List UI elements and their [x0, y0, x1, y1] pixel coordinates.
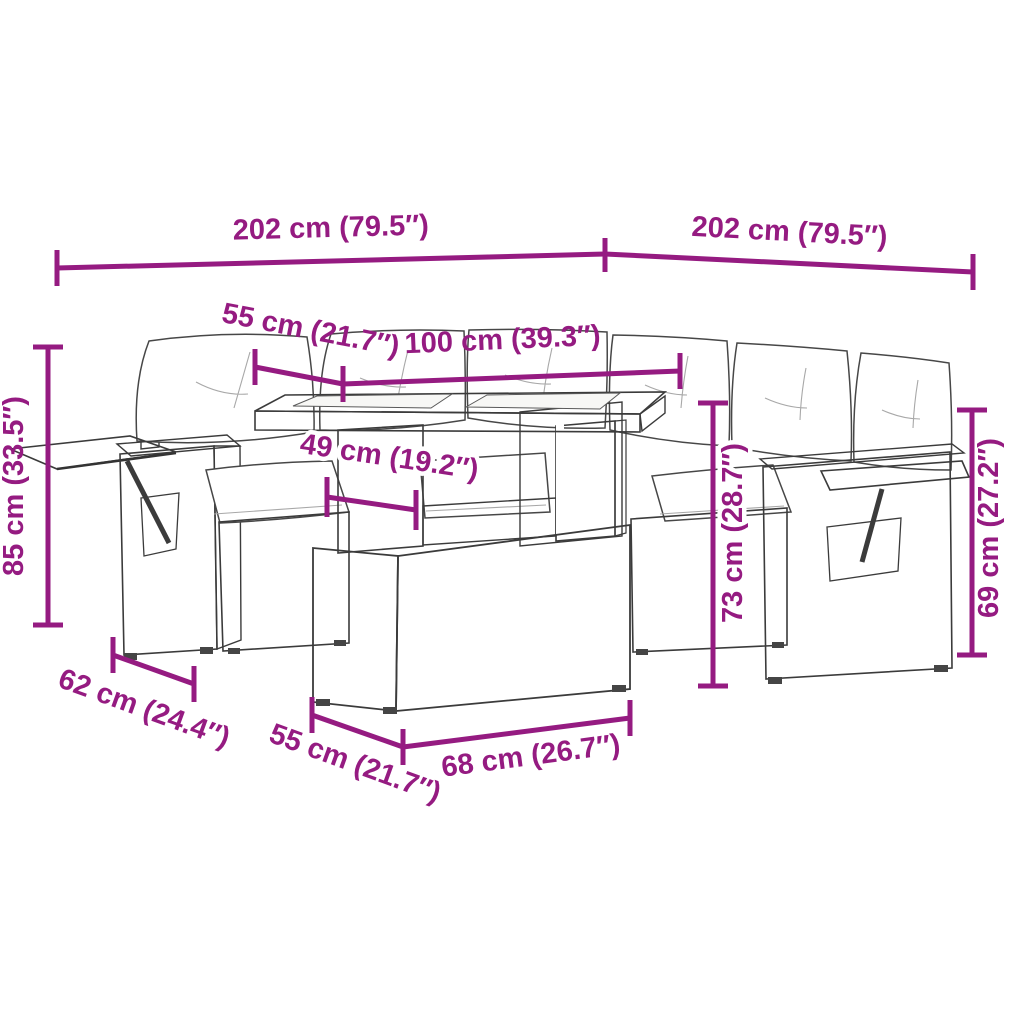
dimension-line	[605, 254, 973, 272]
back-cushion	[732, 343, 852, 461]
dimension-55-front: 55 cm (21.7″)	[265, 697, 445, 809]
right-armrest-front	[763, 452, 952, 679]
furniture-foot	[612, 685, 626, 692]
furniture-foot	[934, 665, 948, 672]
furniture-foot	[334, 640, 346, 646]
dimension-69-right: 69 cm (27.2″)	[957, 410, 1005, 655]
back-cushion	[136, 334, 314, 442]
dimension-label-202-top-left: 202 cm (79.5″)	[232, 209, 429, 246]
furniture-foot	[768, 677, 782, 684]
furniture-foot	[200, 647, 213, 654]
left-seat-base	[219, 512, 349, 651]
dimension-202-top-right: 202 cm (79.5″)	[605, 211, 973, 290]
dimension-202-top-left: 202 cm (79.5″)	[57, 209, 605, 286]
furniture-foot	[772, 642, 784, 648]
product-dimension-diagram: 202 cm (79.5″) 202 cm (79.5″) 55 cm (21.…	[0, 0, 1024, 1024]
furniture-foot	[383, 707, 397, 714]
right-armrest-assembly	[760, 444, 969, 684]
dimension-label-73-mid: 73 cm (28.7″)	[717, 443, 749, 623]
table-right-pedestal	[556, 421, 615, 541]
dimension-line	[57, 254, 605, 268]
dimension-label-202-top-right: 202 cm (79.5″)	[691, 211, 888, 253]
furniture-foot	[228, 648, 240, 654]
ottoman-left-face	[313, 548, 398, 711]
dimension-label-85-left: 85 cm (33.5″)	[0, 396, 30, 576]
dimension-line	[113, 655, 194, 684]
dimension-68-front: 68 cm (26.7″)	[403, 700, 630, 784]
right-tray-strut	[862, 489, 882, 562]
pedestal-gap-highlight	[556, 421, 564, 535]
table-glass-panel	[466, 393, 620, 409]
dimension-85-left: 85 cm (33.5″)	[0, 347, 63, 625]
dimension-62-depth: 62 cm (24.4″)	[54, 637, 234, 754]
table-pedestal-side	[615, 420, 626, 536]
table-glass-panel	[293, 394, 452, 408]
furniture-illustration	[10, 329, 969, 714]
dimension-label-62-depth: 62 cm (24.4″)	[54, 663, 234, 755]
ottoman-front-face	[396, 525, 630, 711]
ottoman	[313, 525, 630, 714]
furniture-foot	[316, 699, 330, 706]
furniture-foot	[636, 649, 648, 655]
diagram-canvas: 202 cm (79.5″) 202 cm (79.5″) 55 cm (21.…	[0, 0, 1024, 1024]
tray-edge	[57, 453, 176, 469]
dimension-73-mid: 73 cm (28.7″)	[698, 403, 749, 686]
left-tray-strut	[127, 461, 169, 543]
dimension-label-69-right: 69 cm (27.2″)	[973, 438, 1005, 618]
